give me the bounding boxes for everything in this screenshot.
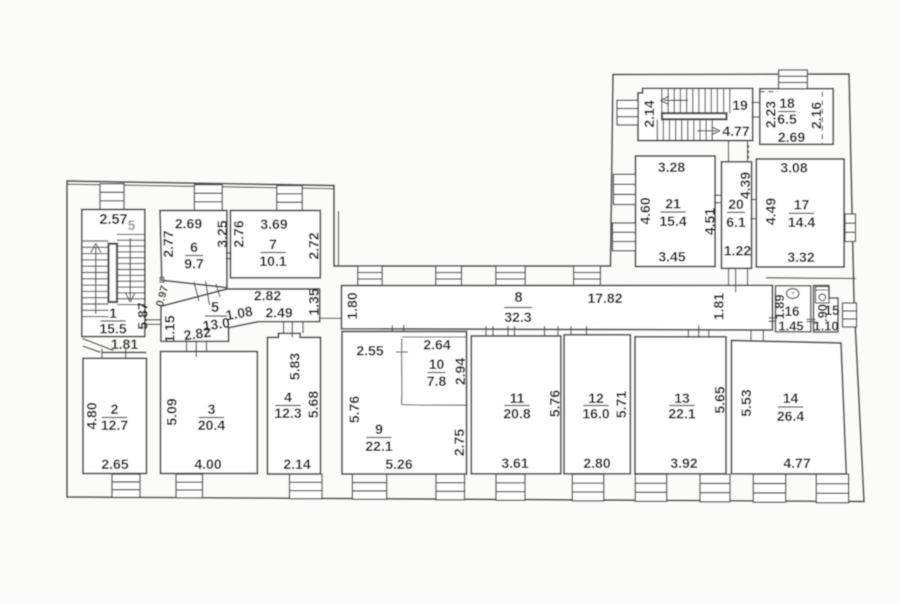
svg-text:2.80: 2.80 — [583, 455, 610, 471]
svg-text:2.14: 2.14 — [641, 100, 657, 127]
svg-text:3.25: 3.25 — [214, 220, 230, 247]
svg-text:5.53: 5.53 — [738, 389, 754, 416]
svg-text:12.3: 12.3 — [274, 405, 301, 421]
svg-text:1.10: 1.10 — [813, 318, 838, 333]
svg-text:3.08: 3.08 — [780, 160, 807, 176]
svg-text:2: 2 — [111, 401, 119, 417]
svg-text:4.00: 4.00 — [194, 456, 221, 472]
svg-text:10.1: 10.1 — [259, 253, 286, 269]
svg-text:2.77: 2.77 — [160, 230, 176, 257]
svg-text:32.3: 32.3 — [504, 309, 531, 325]
svg-text:5.71: 5.71 — [613, 391, 629, 418]
svg-text:2.23: 2.23 — [763, 101, 779, 128]
svg-text:2.76: 2.76 — [230, 220, 246, 247]
svg-text:22.1: 22.1 — [668, 406, 695, 422]
svg-text:5.26: 5.26 — [385, 456, 412, 472]
svg-text:5.76: 5.76 — [346, 396, 362, 423]
svg-text:2.57: 2.57 — [99, 212, 127, 228]
svg-text:6.5: 6.5 — [777, 111, 797, 127]
svg-text:12.7: 12.7 — [101, 417, 128, 433]
svg-text:3.61: 3.61 — [501, 455, 528, 471]
svg-text:3.32: 3.32 — [787, 249, 814, 265]
svg-text:4.80: 4.80 — [84, 402, 100, 429]
svg-text:5: 5 — [211, 300, 219, 316]
svg-text:5.68: 5.68 — [305, 391, 321, 418]
svg-text:1.35: 1.35 — [306, 288, 322, 315]
svg-text:4.77: 4.77 — [722, 123, 749, 139]
svg-text:2.64: 2.64 — [423, 337, 450, 353]
svg-text:5.76: 5.76 — [547, 390, 563, 417]
svg-text:15.5: 15.5 — [99, 321, 126, 337]
svg-text:8: 8 — [514, 290, 522, 306]
svg-text:2.69: 2.69 — [778, 129, 805, 145]
svg-text:3.28: 3.28 — [658, 159, 685, 175]
svg-text:1.22: 1.22 — [724, 243, 751, 259]
svg-text:18: 18 — [779, 95, 795, 111]
svg-text:17: 17 — [794, 197, 810, 213]
svg-text:6: 6 — [190, 239, 198, 255]
svg-text:21: 21 — [665, 196, 681, 212]
svg-text:2.65: 2.65 — [101, 456, 128, 472]
svg-text:5.87: 5.87 — [135, 302, 151, 329]
svg-text:14: 14 — [783, 390, 799, 406]
svg-text:2.14: 2.14 — [283, 456, 310, 472]
svg-text:2.82: 2.82 — [254, 288, 281, 304]
svg-text:3.92: 3.92 — [670, 455, 697, 471]
svg-text:2.94: 2.94 — [452, 358, 468, 385]
svg-text:5.65: 5.65 — [712, 386, 728, 413]
svg-text:16.0: 16.0 — [582, 406, 609, 422]
svg-text:9: 9 — [375, 421, 383, 437]
svg-text:11: 11 — [510, 390, 525, 406]
svg-text:4.39: 4.39 — [737, 172, 753, 199]
svg-text:7: 7 — [269, 236, 277, 252]
svg-text:12: 12 — [588, 390, 604, 406]
svg-text:22.1: 22.1 — [365, 438, 392, 454]
svg-text:1.45: 1.45 — [778, 318, 803, 333]
svg-text:6.1: 6.1 — [726, 214, 746, 230]
svg-text:26.4: 26.4 — [777, 408, 804, 424]
svg-text:5.09: 5.09 — [164, 398, 180, 425]
svg-text:1.80: 1.80 — [344, 292, 360, 319]
svg-text:20.4: 20.4 — [198, 417, 225, 433]
svg-text:2.72: 2.72 — [306, 232, 322, 259]
svg-text:4: 4 — [284, 389, 292, 405]
svg-text:2.16: 2.16 — [808, 102, 824, 129]
svg-text:3: 3 — [208, 401, 216, 417]
svg-text:9.7: 9.7 — [184, 256, 204, 272]
svg-text:10: 10 — [429, 356, 445, 372]
svg-text:1.81: 1.81 — [111, 336, 138, 352]
svg-text:1.15: 1.15 — [162, 315, 178, 342]
svg-text:2.49: 2.49 — [265, 305, 292, 321]
svg-text:2.69: 2.69 — [175, 216, 202, 232]
svg-text:3.45: 3.45 — [658, 249, 685, 265]
svg-text:19: 19 — [732, 97, 748, 113]
svg-text:1.81: 1.81 — [711, 293, 727, 320]
svg-text:3.69: 3.69 — [260, 216, 287, 232]
svg-text:1.89: 1.89 — [772, 294, 787, 319]
svg-text:4.51: 4.51 — [702, 208, 718, 235]
svg-text:20.8: 20.8 — [503, 406, 530, 422]
svg-text:15.4: 15.4 — [659, 213, 686, 229]
svg-text:2.55: 2.55 — [356, 343, 383, 359]
svg-text:4.49: 4.49 — [763, 198, 779, 225]
svg-text:4.77: 4.77 — [783, 455, 810, 471]
svg-text:17.82: 17.82 — [587, 290, 622, 306]
svg-text:1: 1 — [109, 305, 117, 321]
svg-text:5.83: 5.83 — [287, 353, 303, 380]
svg-text:5: 5 — [128, 218, 136, 233]
svg-text:13: 13 — [674, 390, 690, 406]
svg-text:4.60: 4.60 — [637, 197, 653, 224]
svg-text:14.4: 14.4 — [788, 214, 815, 230]
svg-text:7.8: 7.8 — [427, 373, 447, 389]
svg-text:2.75: 2.75 — [451, 429, 467, 456]
